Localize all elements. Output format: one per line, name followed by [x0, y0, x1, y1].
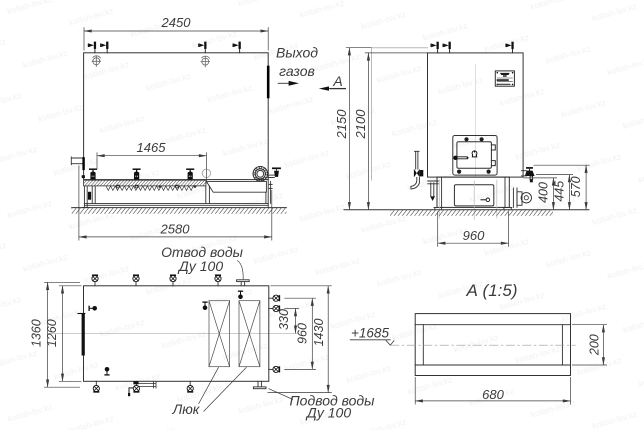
svg-text:1260: 1260: [45, 319, 59, 347]
svg-text:2100: 2100: [353, 109, 368, 140]
svg-text:960: 960: [296, 323, 310, 344]
svg-text:400: 400: [537, 182, 551, 203]
svg-text:А: А: [332, 73, 342, 89]
svg-text:Выход: Выход: [276, 45, 318, 61]
svg-text:570: 570: [569, 176, 583, 197]
svg-text:газов: газов: [279, 63, 315, 79]
svg-text:1465: 1465: [137, 140, 167, 155]
svg-text:445: 445: [553, 181, 567, 202]
svg-text:330: 330: [277, 309, 291, 330]
svg-text:1430: 1430: [312, 319, 326, 347]
svg-text:2150: 2150: [334, 109, 349, 140]
svg-text:+1685: +1685: [351, 326, 389, 341]
svg-text:Ду 100: Ду 100: [177, 258, 223, 274]
svg-text:А (1:5): А (1:5): [465, 281, 517, 300]
svg-text:Ду 100: Ду 100: [305, 405, 351, 421]
svg-text:680: 680: [482, 387, 504, 402]
svg-text:2580: 2580: [160, 222, 191, 237]
svg-text:2450: 2450: [161, 15, 192, 30]
svg-text:1360: 1360: [29, 319, 43, 347]
svg-text:960: 960: [463, 228, 485, 243]
svg-text:Люк: Люк: [172, 401, 201, 417]
svg-text:200: 200: [587, 334, 601, 356]
